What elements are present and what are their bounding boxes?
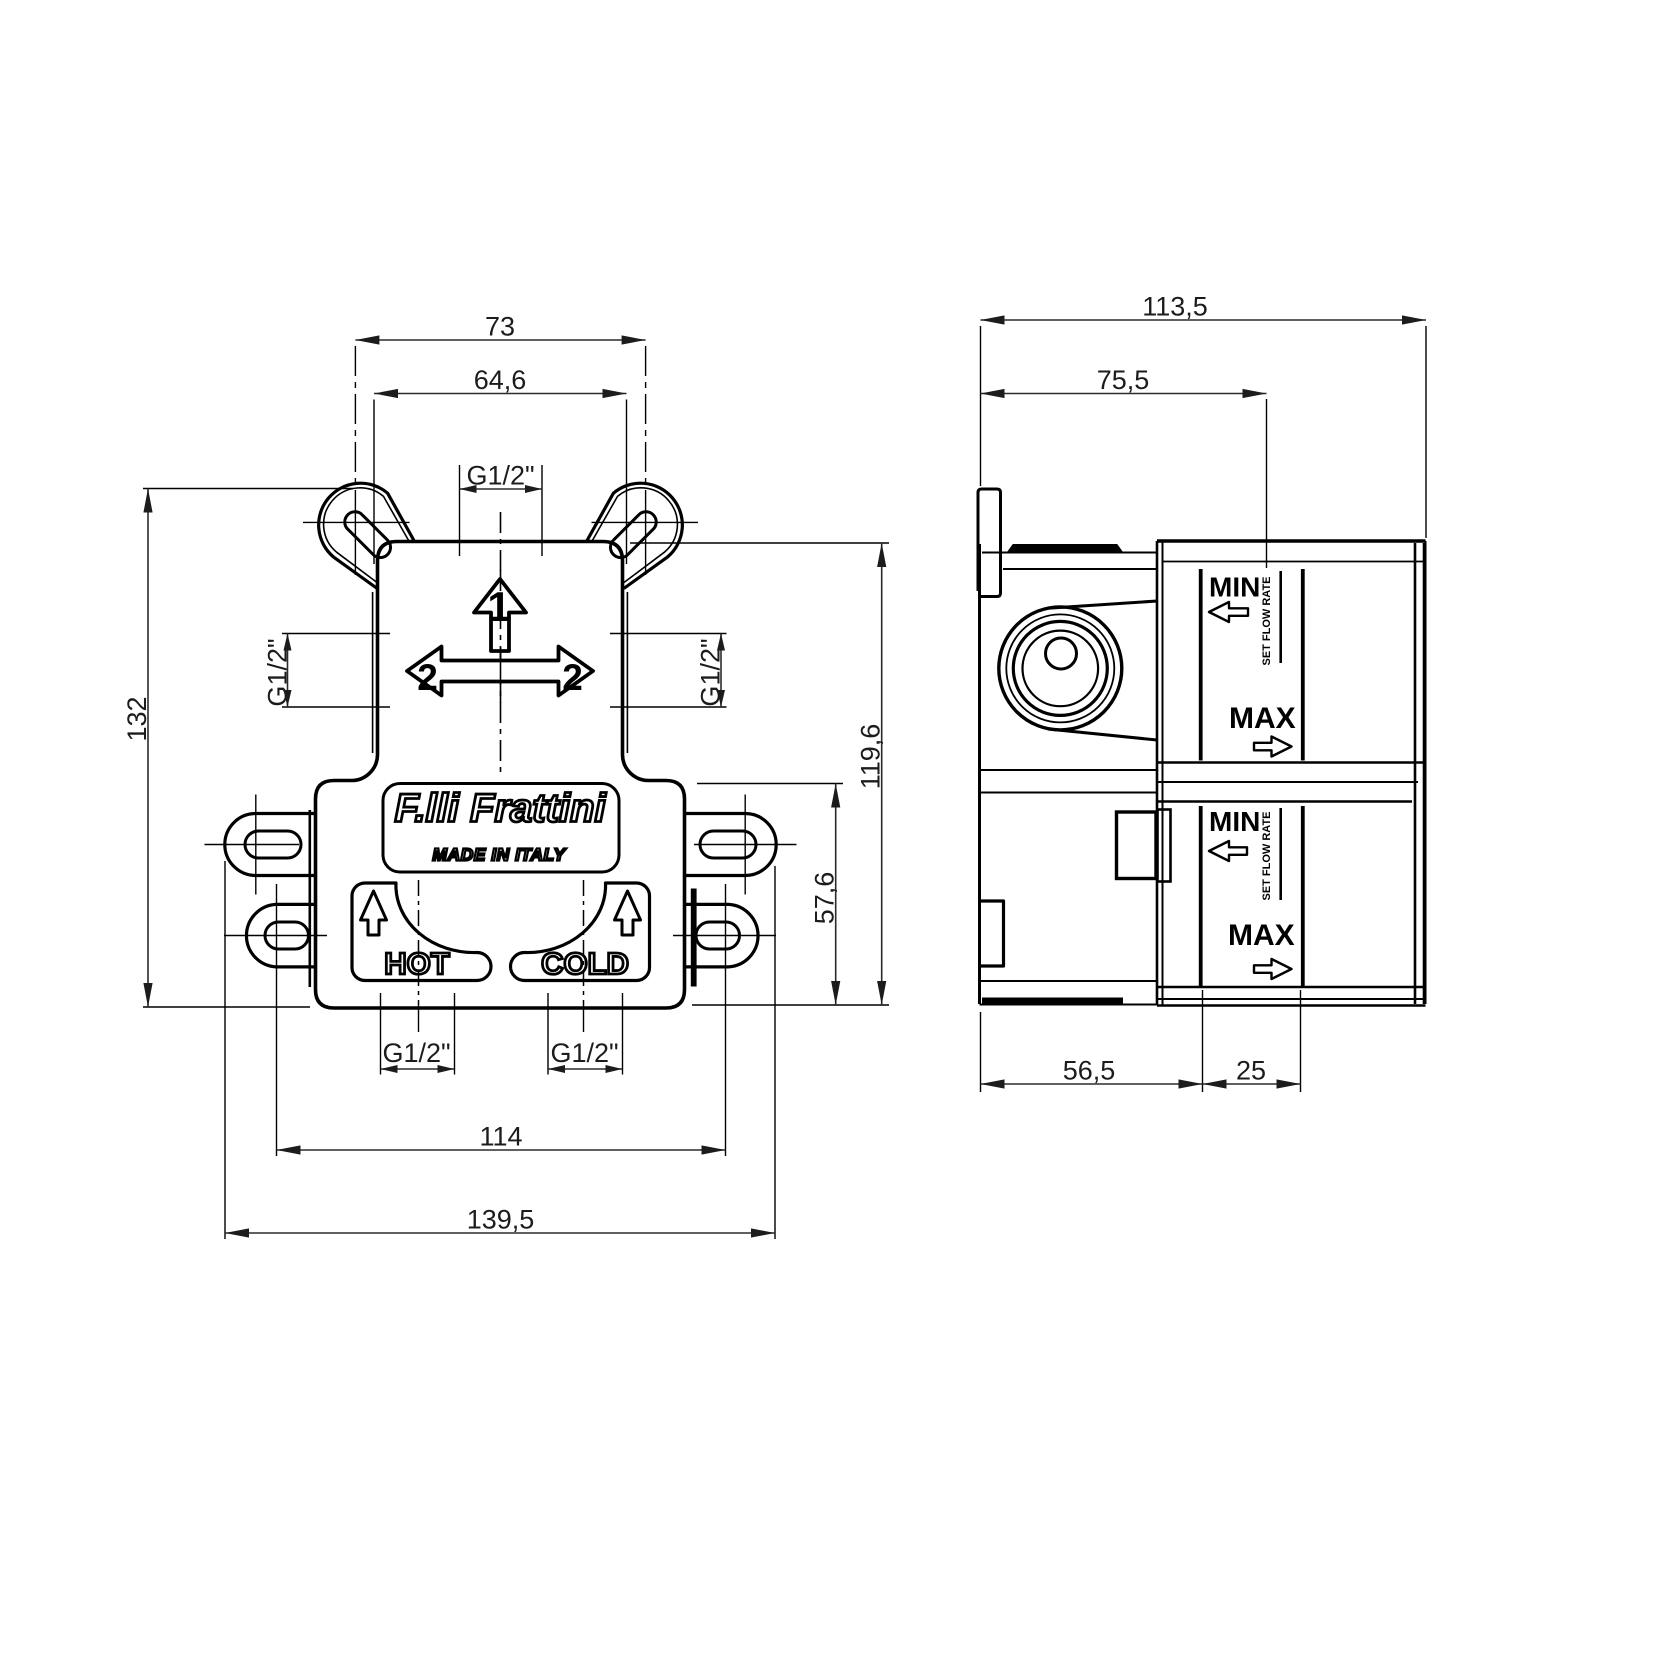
svg-text:SET FLOW RATE: SET FLOW RATE xyxy=(1261,576,1273,665)
svg-text:MIN: MIN xyxy=(1209,572,1260,603)
svg-text:SET FLOW RATE: SET FLOW RATE xyxy=(1261,811,1273,900)
svg-text:25: 25 xyxy=(1236,1056,1266,1086)
svg-text:G1/2": G1/2" xyxy=(382,1038,450,1068)
svg-text:MAX: MAX xyxy=(1228,919,1295,952)
svg-text:F.lli Frattini: F.lli Frattini xyxy=(394,787,606,831)
svg-text:MADE IN ITALY: MADE IN ITALY xyxy=(432,845,566,865)
svg-text:56,5: 56,5 xyxy=(1063,1056,1116,1086)
svg-text:G1/2": G1/2" xyxy=(696,638,726,706)
svg-text:1: 1 xyxy=(487,583,510,630)
svg-text:132: 132 xyxy=(122,696,152,741)
svg-text:119,6: 119,6 xyxy=(856,724,886,790)
svg-text:73: 73 xyxy=(485,312,515,342)
svg-text:HOT: HOT xyxy=(384,946,450,981)
svg-text:57,6: 57,6 xyxy=(810,872,840,925)
svg-text:2: 2 xyxy=(562,657,583,698)
svg-text:2: 2 xyxy=(417,657,438,698)
svg-text:64,6: 64,6 xyxy=(474,365,527,395)
svg-text:MIN: MIN xyxy=(1209,806,1260,837)
svg-text:114: 114 xyxy=(479,1122,522,1152)
svg-text:75,5: 75,5 xyxy=(1097,365,1150,395)
svg-text:113,5: 113,5 xyxy=(1142,292,1208,322)
svg-text:G1/2": G1/2" xyxy=(263,638,293,706)
svg-text:G1/2": G1/2" xyxy=(550,1038,618,1068)
svg-text:MAX: MAX xyxy=(1229,702,1296,735)
svg-text:COLD: COLD xyxy=(541,946,629,981)
svg-text:139,5: 139,5 xyxy=(467,1205,535,1235)
svg-text:G1/2": G1/2" xyxy=(466,461,534,491)
